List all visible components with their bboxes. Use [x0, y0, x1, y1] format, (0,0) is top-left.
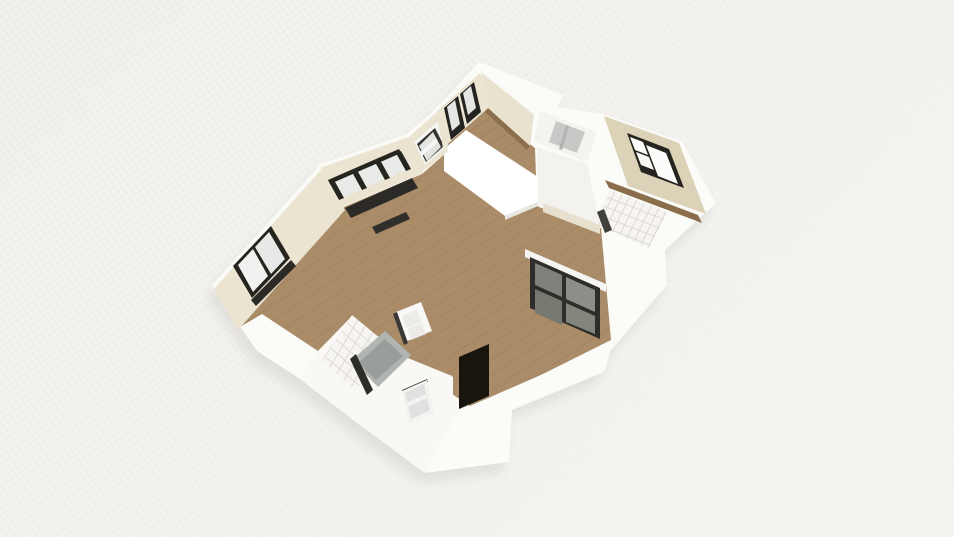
- floorplan-3d-viewport[interactable]: [0, 0, 954, 537]
- floorplan-svg: [0, 0, 954, 537]
